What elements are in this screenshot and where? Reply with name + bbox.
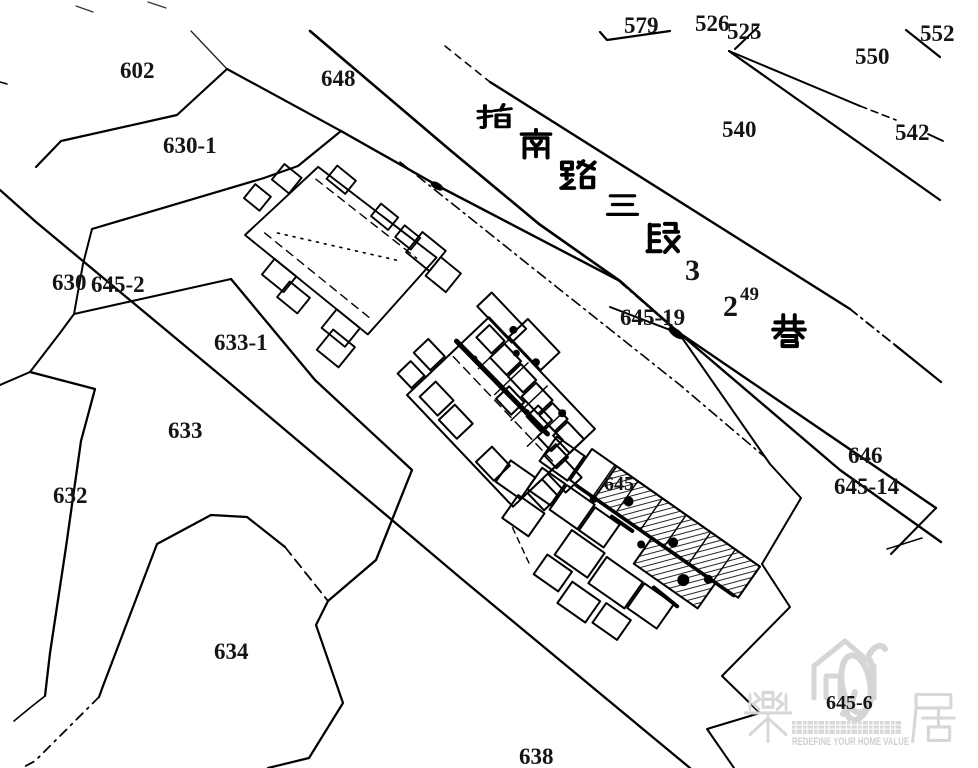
svg-text:646: 646 [848,443,883,468]
svg-text:648: 648 [321,66,356,91]
svg-text:638: 638 [519,744,554,768]
svg-text:634: 634 [214,639,249,664]
svg-text:2: 2 [723,290,738,323]
svg-text:645-2: 645-2 [91,272,145,297]
svg-text:630: 630 [52,270,87,295]
svg-text:579: 579 [624,13,659,38]
svg-text:REDEFINE YOUR HOME VALUE: REDEFINE YOUR HOME VALUE [792,736,909,748]
svg-text:633: 633 [168,418,203,443]
svg-text:49: 49 [740,284,759,305]
svg-text:645: 645 [604,473,634,495]
svg-text:550: 550 [855,44,890,69]
svg-text:540: 540 [722,117,757,142]
svg-text:3: 3 [685,254,700,287]
svg-text:645-19: 645-19 [620,305,685,330]
svg-text:526: 526 [695,11,730,36]
svg-text:633-1: 633-1 [214,330,268,355]
svg-text:602: 602 [120,58,155,83]
svg-text:632: 632 [53,483,88,508]
svg-text:630-1: 630-1 [163,133,217,158]
svg-text:525: 525 [727,19,762,44]
svg-text:645-14: 645-14 [834,474,900,499]
svg-text:645-6: 645-6 [826,692,873,714]
svg-text:542: 542 [895,120,930,145]
svg-text:552: 552 [920,21,955,46]
